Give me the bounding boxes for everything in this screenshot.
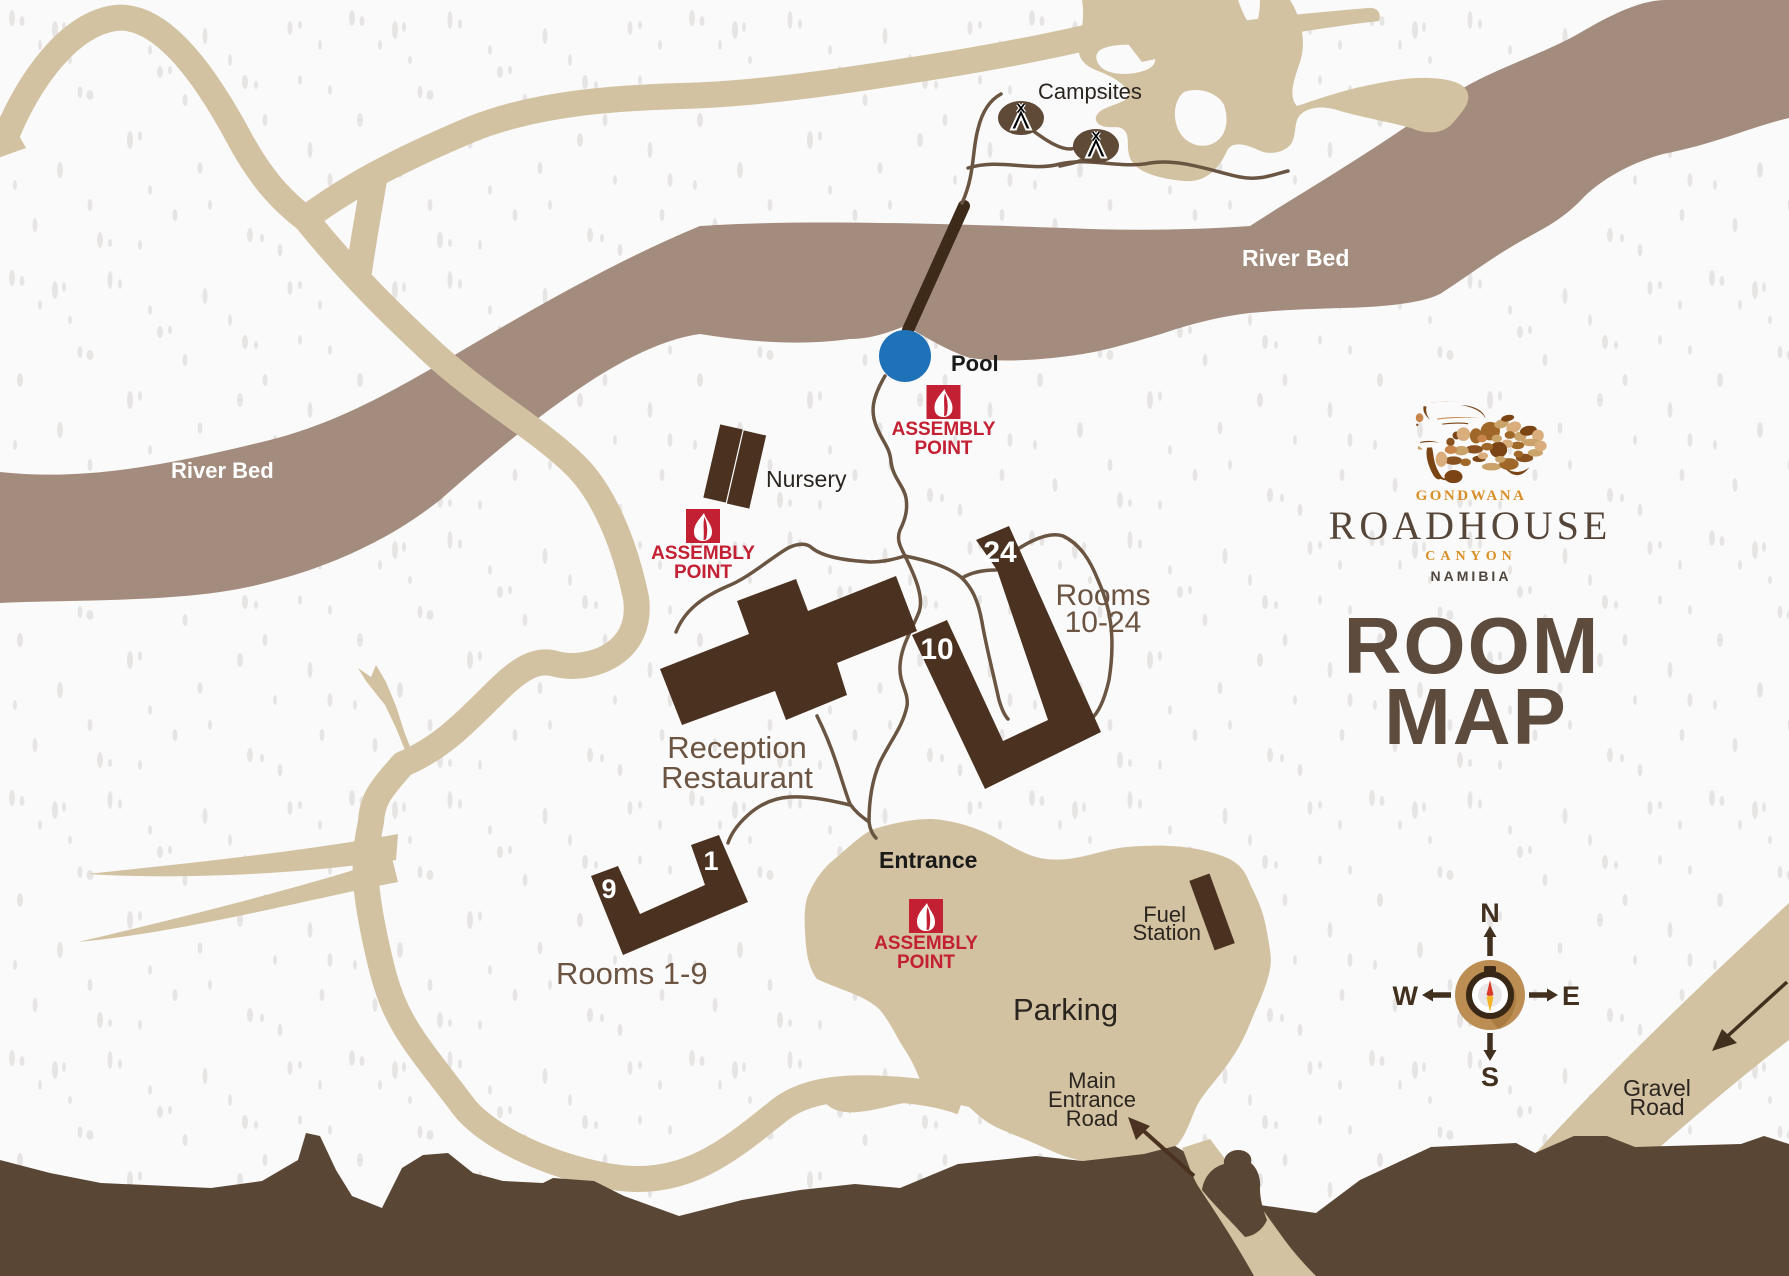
svg-text:E: E <box>1562 981 1580 1011</box>
svg-text:River Bed: River Bed <box>171 458 274 483</box>
svg-text:Road: Road <box>1630 1094 1685 1120</box>
svg-text:ASSEMBLY: ASSEMBLY <box>874 933 978 954</box>
svg-text:W: W <box>1393 981 1419 1011</box>
svg-text:Road: Road <box>1066 1106 1119 1131</box>
svg-text:CANYON: CANYON <box>1425 549 1516 564</box>
svg-text:1: 1 <box>703 846 718 876</box>
svg-text:Station: Station <box>1133 920 1202 945</box>
svg-text:Pool: Pool <box>951 351 999 376</box>
svg-text:Rooms 1-9: Rooms 1-9 <box>556 956 708 991</box>
svg-text:NAMIBIA: NAMIBIA <box>1431 568 1512 584</box>
svg-text:Restaurant: Restaurant <box>661 760 813 795</box>
svg-text:Parking: Parking <box>1013 992 1118 1027</box>
svg-text:ASSEMBLY: ASSEMBLY <box>892 419 996 440</box>
svg-text:ASSEMBLY: ASSEMBLY <box>651 543 755 564</box>
svg-text:POINT: POINT <box>674 562 732 583</box>
svg-text:POINT: POINT <box>897 952 955 973</box>
svg-text:S: S <box>1481 1062 1499 1092</box>
svg-text:POINT: POINT <box>914 438 972 459</box>
svg-text:24: 24 <box>983 536 1017 569</box>
svg-text:ROADHOUSE: ROADHOUSE <box>1329 503 1612 548</box>
svg-text:N: N <box>1480 898 1500 928</box>
svg-text:9: 9 <box>601 874 616 904</box>
svg-text:10: 10 <box>920 633 953 666</box>
svg-text:River Bed: River Bed <box>1242 245 1349 271</box>
svg-text:MAP: MAP <box>1384 672 1568 761</box>
svg-text:GONDWANA: GONDWANA <box>1416 488 1527 504</box>
svg-text:Campsites: Campsites <box>1038 79 1142 104</box>
svg-text:10-24: 10-24 <box>1065 606 1142 639</box>
svg-text:Nursery: Nursery <box>766 466 847 492</box>
svg-text:Entrance: Entrance <box>879 847 977 873</box>
